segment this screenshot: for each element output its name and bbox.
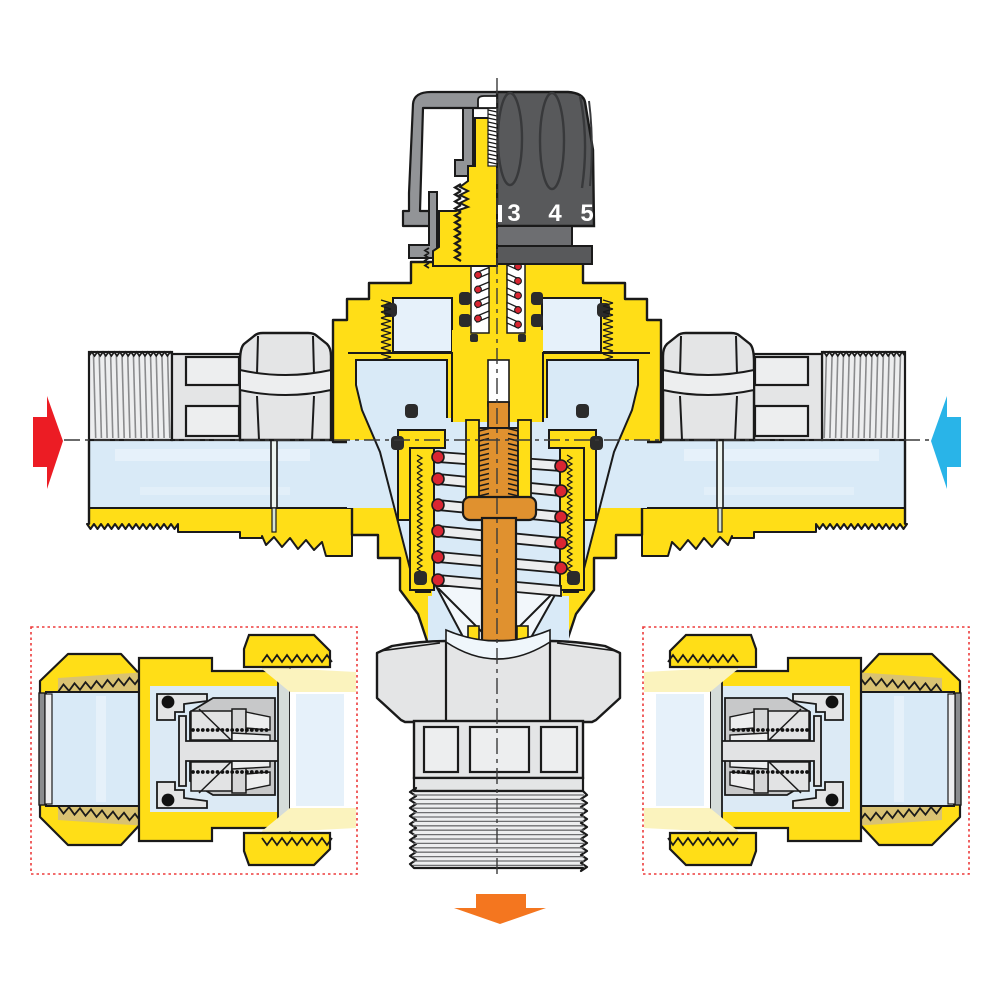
svg-text:5: 5 (580, 200, 593, 227)
svg-text:3: 3 (507, 200, 520, 227)
svg-text:4: 4 (548, 200, 562, 227)
